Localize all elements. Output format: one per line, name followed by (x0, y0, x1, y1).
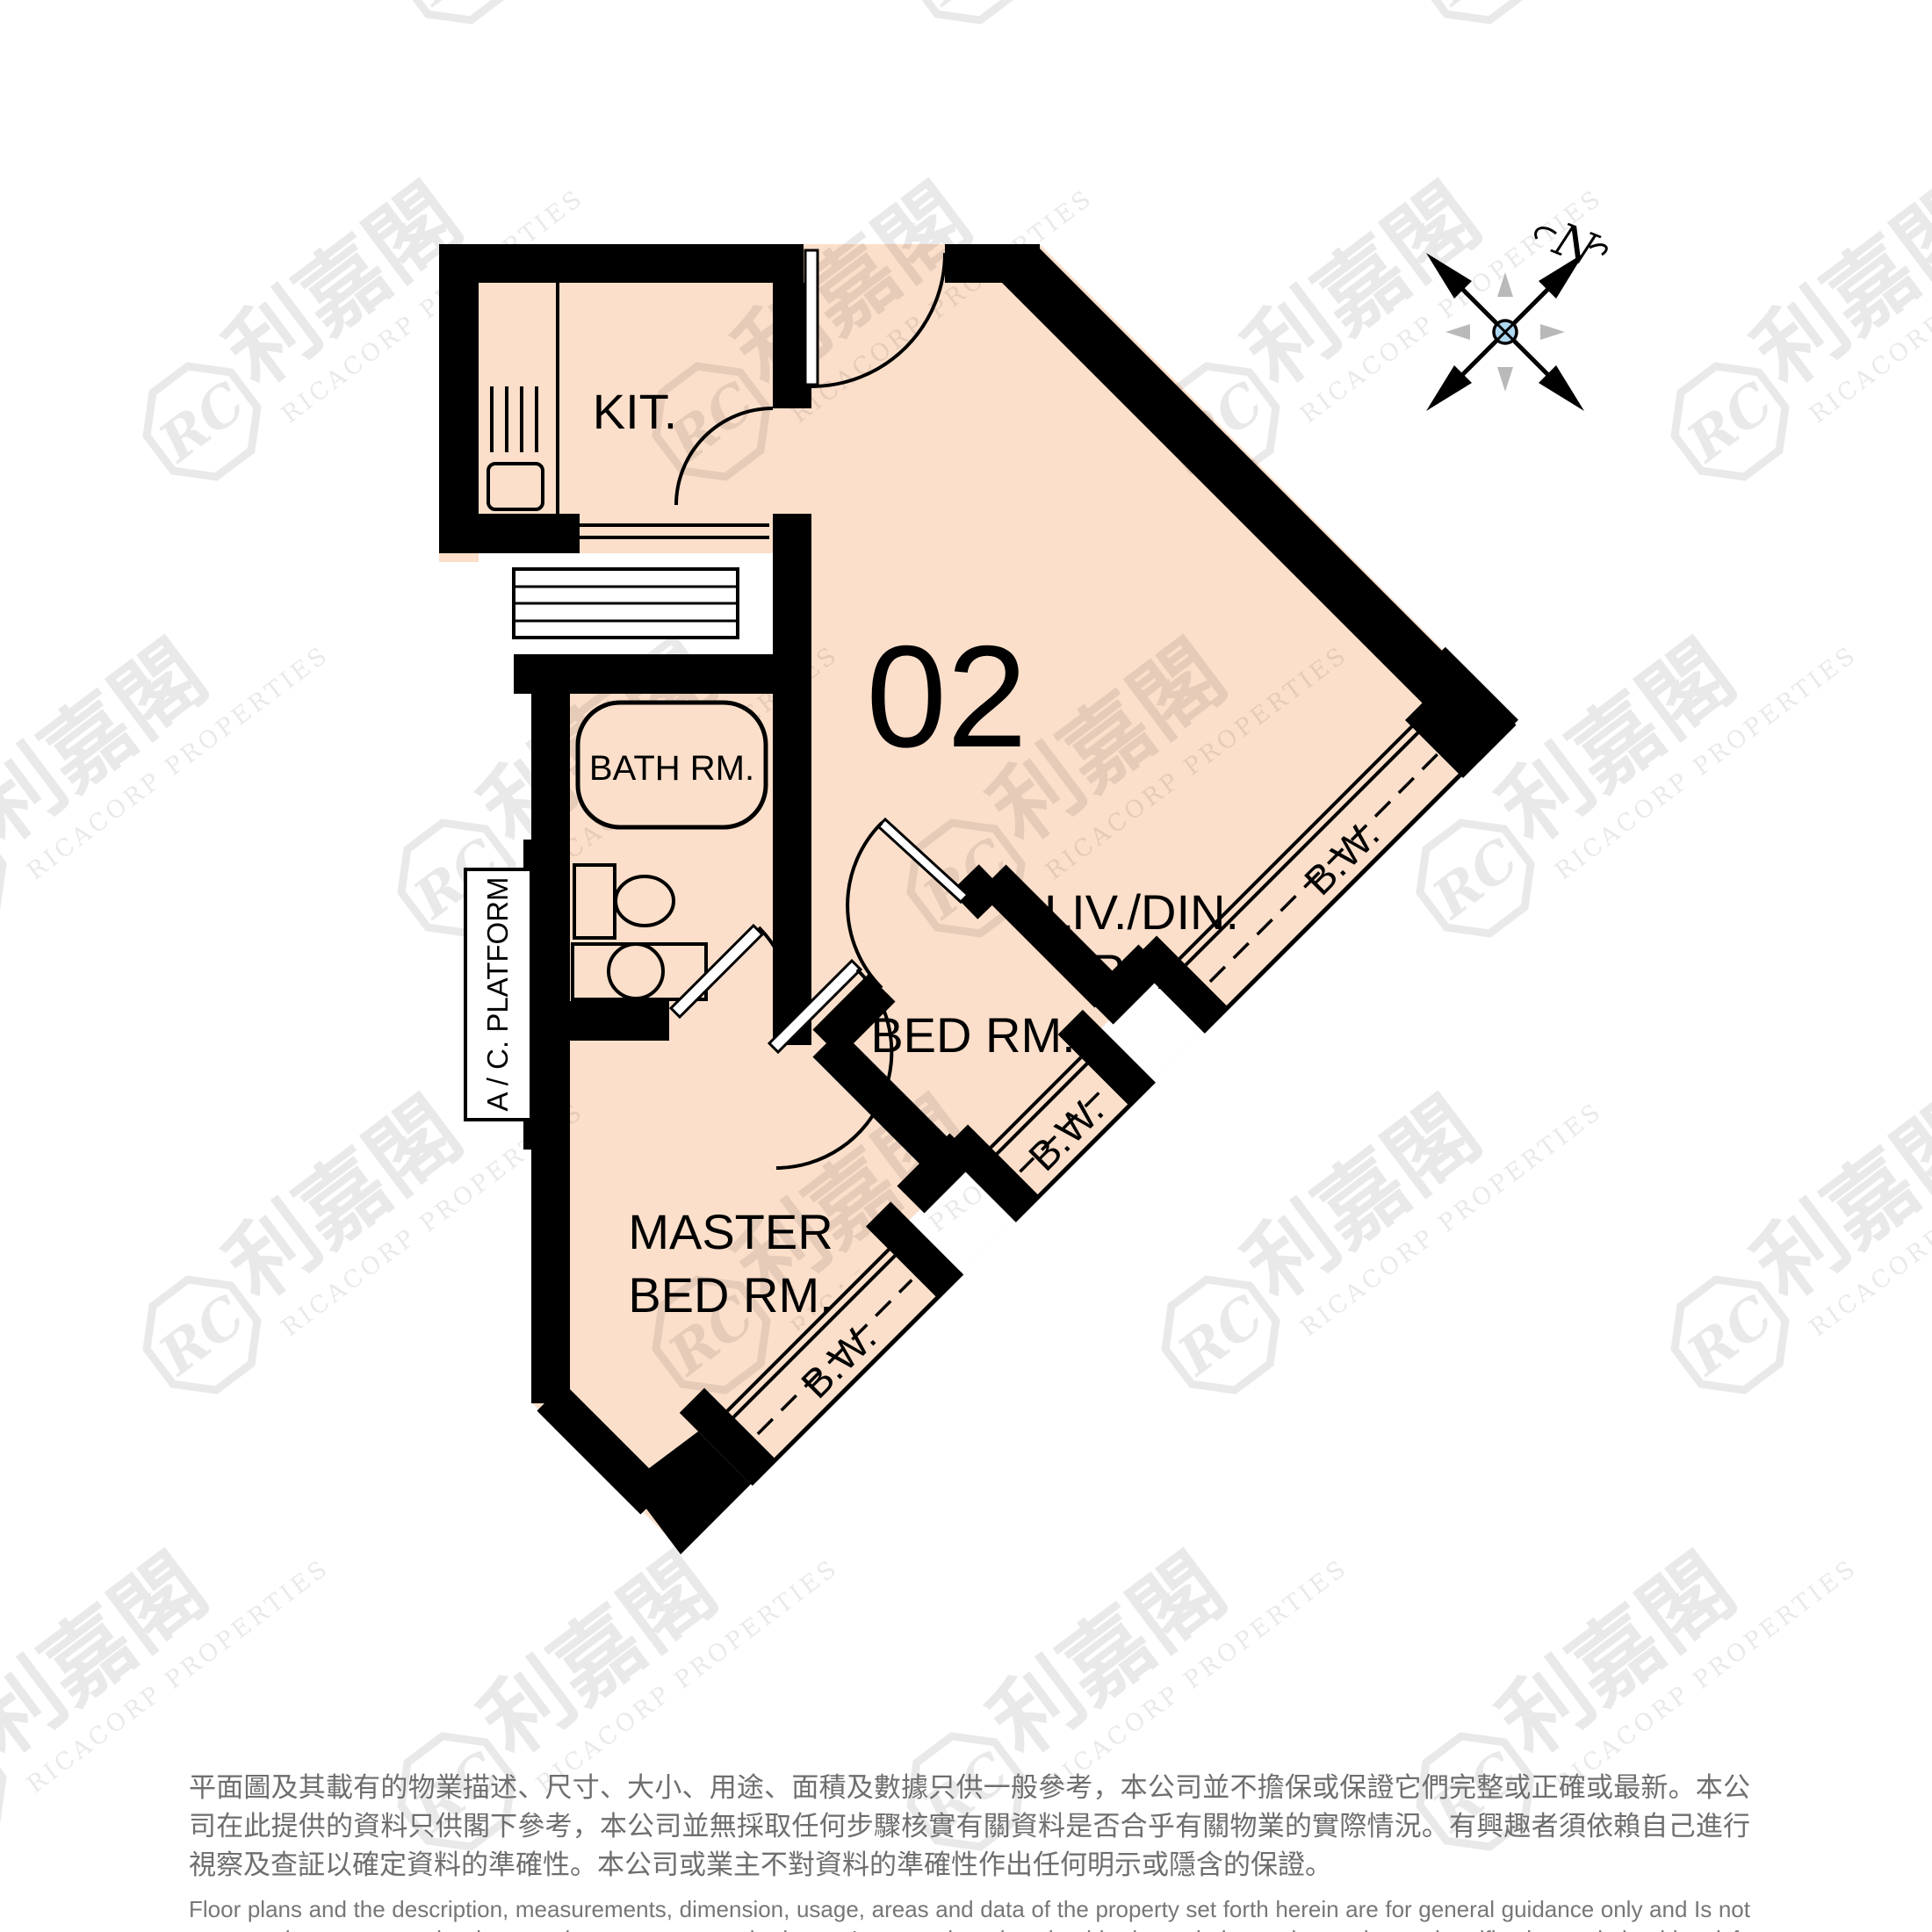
wall-top-kitchen (439, 244, 804, 283)
toilet-cistern (574, 865, 615, 938)
master-label-line2: BED RM. (628, 1267, 833, 1323)
disclaimer-block: 平面圖及其載有的物業描述、尺寸、大小、用途、面積及數據只供一般參考，本公司並不擔… (189, 1769, 1750, 1932)
ac-platform: A / C. PLATFORM (465, 869, 531, 1120)
living-label-line1: LIV./DIN. (1044, 884, 1239, 940)
disclaimer-chinese: 平面圖及其載有的物業描述、尺寸、大小、用途、面積及數據只供一般參考，本公司並不擔… (189, 1769, 1750, 1885)
disclaimer-english: Floor plans and the description, measure… (189, 1895, 1750, 1932)
bathroom-label: BATH RM. (589, 749, 754, 788)
wall-corridor-left (773, 514, 811, 694)
compass-arrow-w-icon (1445, 324, 1470, 340)
bedroom-label: BED RM. (870, 1007, 1075, 1063)
master-label-line1: MASTER (628, 1204, 833, 1259)
kitchen-label: KIT. (593, 384, 677, 439)
ac-platform-label: A / C. PLATFORM (481, 876, 514, 1111)
wall-kitchen-bottom (439, 514, 580, 553)
entry-door-leaf (805, 250, 818, 385)
basin (609, 944, 663, 998)
toilet-bowl (616, 876, 674, 926)
compass-arrow-s-icon (1497, 367, 1513, 392)
kitchen-window-sill (514, 569, 738, 638)
floor-plan-page: RC 利嘉閣 RICACORP PROPERTIES (0, 0, 1932, 1932)
wall-kitchen-left (439, 244, 479, 553)
kitchen-appliance (488, 464, 543, 509)
unit-number-label: 02 (866, 616, 1027, 777)
living-label-line2: RM (1090, 944, 1166, 999)
compass-arrow-e-icon (1540, 324, 1565, 340)
floor-plan-svg: RC 利嘉閣 RICACORP PROPERTIES (0, 0, 1932, 1932)
